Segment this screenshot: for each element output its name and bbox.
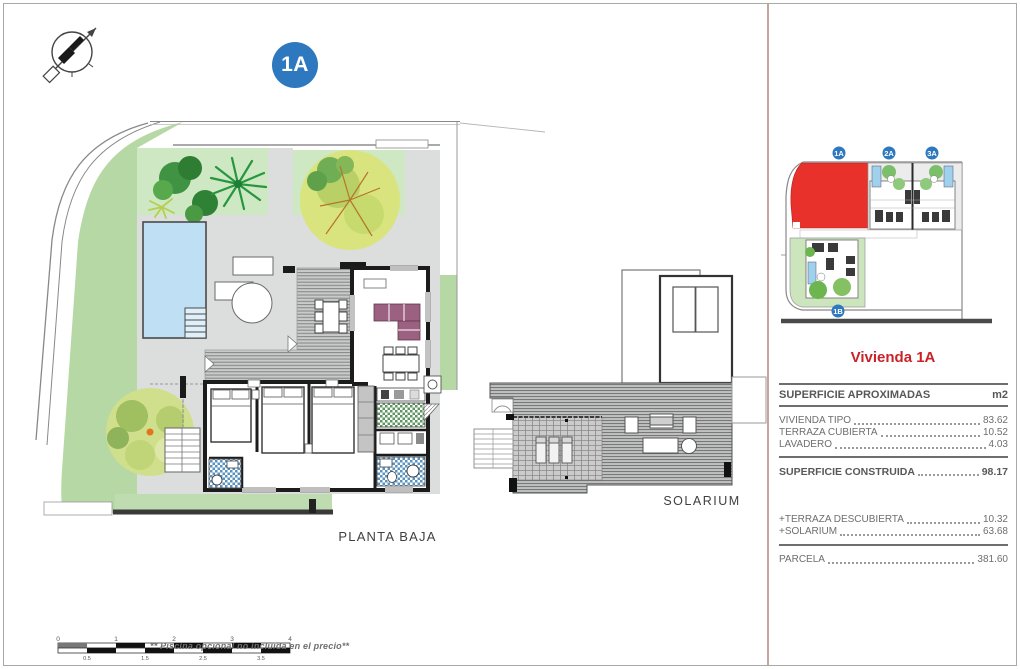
coffee-table — [364, 279, 386, 288]
laundry — [380, 433, 424, 444]
table-rule — [779, 456, 1008, 458]
unit-badge-label: 1A — [281, 53, 309, 77]
table-total-row: SUPERFICIE CONSTRUIDA 98.17 — [779, 466, 1008, 478]
scale-tick-label: 3.5 — [257, 656, 265, 662]
panel-title: Vivienda 1A — [778, 349, 1008, 366]
units-2a-3a — [868, 163, 962, 230]
unit-badge: 1A — [272, 42, 318, 88]
floor-plan-sheet: 1A PLANTA BAJA SOLARIUM — [0, 0, 1020, 669]
table-header-unit: m2 — [992, 389, 1008, 401]
table-row: VIVIENDA TIPO 83.62 — [779, 415, 1008, 427]
badge-1a-label: 1A — [834, 149, 844, 158]
highlighted-parcel-1a — [791, 163, 868, 228]
sun-loungers — [536, 437, 572, 463]
panel-divider — [767, 4, 769, 665]
table-parcel-row: PARCELA 381.60 — [779, 554, 1008, 566]
kitchen — [377, 388, 425, 427]
floor-plan-graphic — [0, 0, 768, 669]
site-location-map: 1A 2A 3A 1B — [778, 136, 1012, 350]
north-arrow-icon — [43, 28, 96, 82]
table-row: +TERRAZA DESCUBIERTA 10.32 — [779, 514, 1008, 526]
solarium-plan — [474, 270, 766, 493]
table-header: SUPERFICIE APROXIMADAS m2 — [779, 385, 1008, 405]
solarium-caption: SOLARIUM — [632, 494, 772, 508]
table-rule — [779, 544, 1008, 546]
table-row: TERRAZA CUBIERTA 10.52 — [779, 427, 1008, 439]
scale-tick-label: 0 — [56, 636, 60, 643]
table-row: LAVADERO 4.03 — [779, 439, 1008, 451]
table-row: +SOLARIUM 63.68 — [779, 526, 1008, 538]
pool — [143, 222, 206, 338]
badge-1b-label: 1B — [833, 307, 843, 316]
bathroom-2 — [377, 457, 425, 486]
scale-tick-label: 0.5 — [83, 656, 91, 662]
surface-table: SUPERFICIE APROXIMADAS m2 VIVIENDA TIPO … — [779, 383, 1008, 566]
badge-2a-label: 2A — [884, 149, 894, 158]
scale-tick-label: 2.5 — [199, 656, 207, 662]
pool-disclaimer: ** Piscina opcional no incluida en el pr… — [150, 641, 349, 651]
dining-table — [383, 347, 419, 380]
table-header-label: SUPERFICIE APROXIMADAS — [779, 389, 930, 401]
bathroom-1 — [209, 459, 241, 488]
planta-baja-label: PLANTA BAJA — [295, 529, 480, 544]
unit-1b — [790, 238, 865, 307]
scale-tick-label: 1 — [114, 636, 118, 643]
scale-tick-label: 1.5 — [141, 656, 149, 662]
table-rule — [779, 405, 1008, 407]
solarium-stairs — [474, 399, 513, 468]
badge-3a-label: 3A — [927, 149, 937, 158]
